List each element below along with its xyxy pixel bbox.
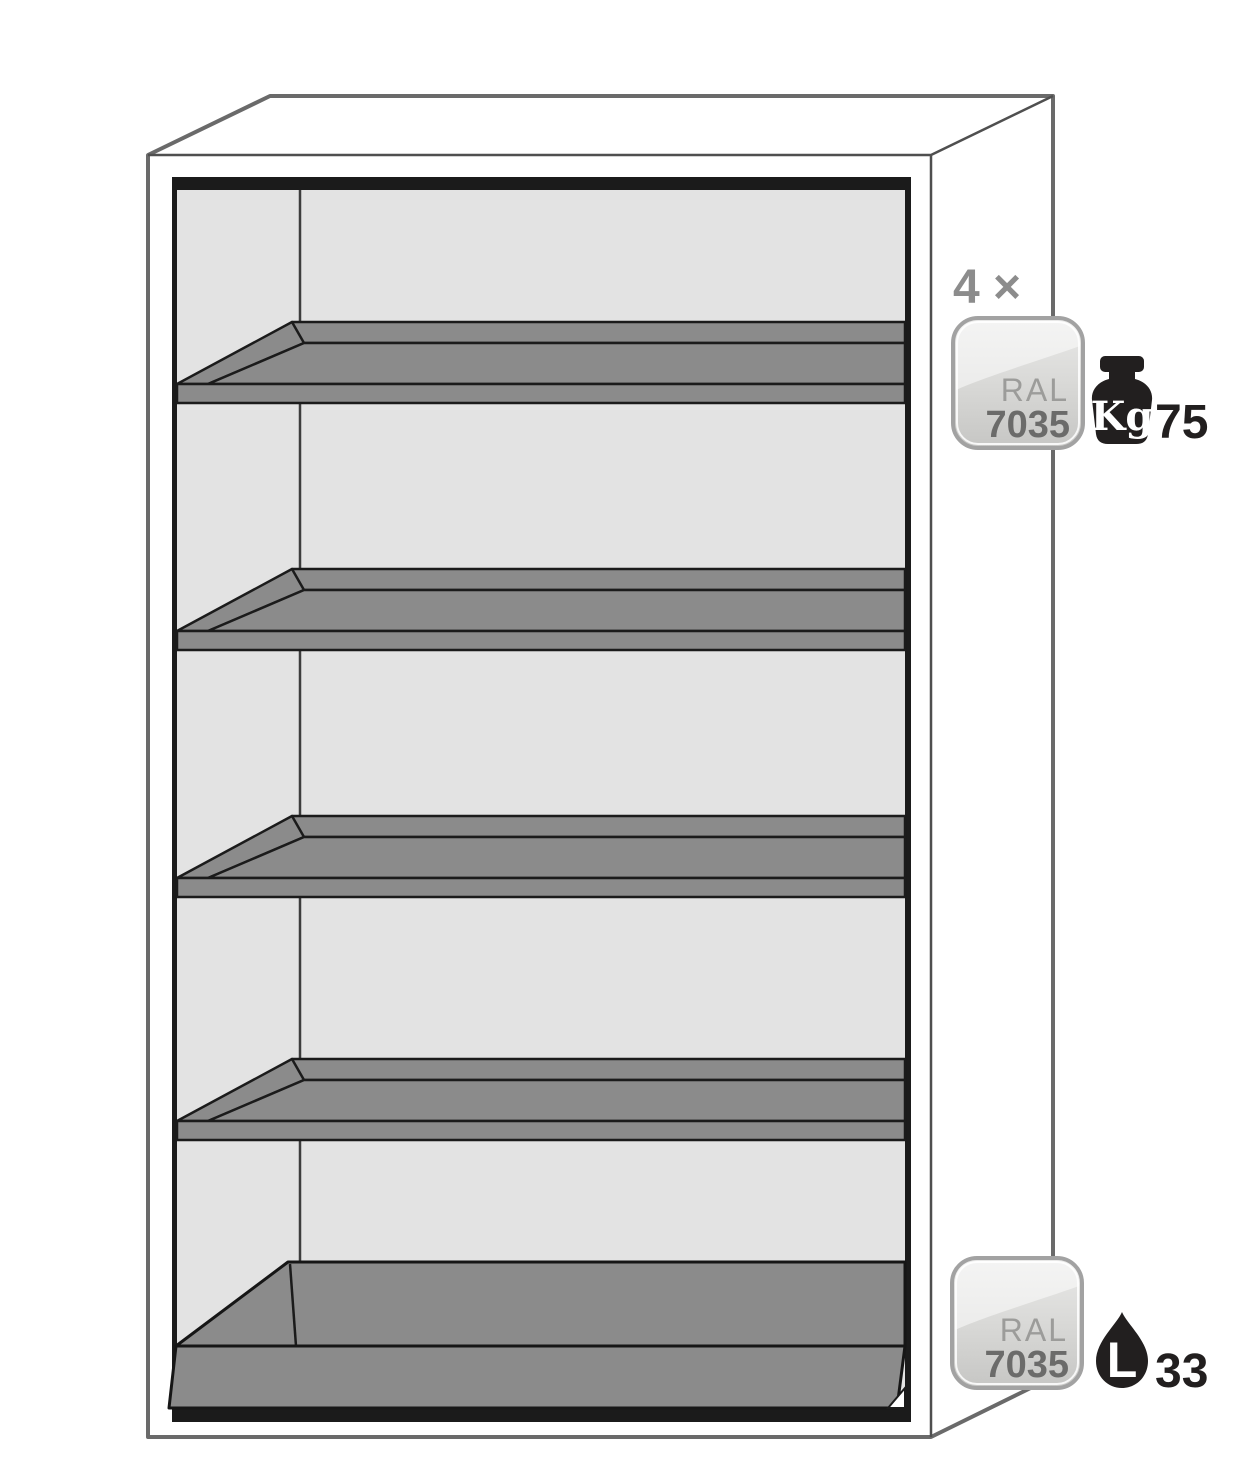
shelf-top-surface (208, 837, 905, 878)
shelf-count-label: 4 × (953, 261, 1021, 314)
shelf-back-rim (292, 816, 905, 837)
shelf-top-surface (208, 590, 905, 631)
shelf-back-rim (292, 1059, 905, 1080)
weight-icon-handle (1100, 356, 1144, 372)
shelf-4 (177, 1059, 905, 1140)
sump-color-badge: RAL 7035 (952, 1258, 1082, 1388)
ral-code-label: 7035 (985, 404, 1070, 446)
sump-capacity-value: 33 (1155, 1345, 1208, 1398)
shelf-back-rim (292, 569, 905, 590)
shelf-top-surface (208, 1080, 905, 1121)
weight-icon: Kg (1091, 356, 1154, 444)
sump-tray (169, 1262, 905, 1408)
shelf-front-edge (177, 631, 905, 650)
ral-standard-label: RAL (1000, 1312, 1068, 1348)
weight-unit-label: Kg (1091, 393, 1154, 440)
cabinet-diagram: 4 × RAL 7035 Kg 75 RAL 7035 L 33 (0, 0, 1243, 1468)
cabinet-top-face (148, 96, 1053, 155)
shelf-3 (177, 816, 905, 897)
drop-icon: L (1096, 1312, 1148, 1388)
shelf-2 (177, 569, 905, 650)
shelf-front-edge (177, 384, 905, 403)
ral-standard-label: RAL (1001, 372, 1069, 408)
shelf-front-edge (177, 1121, 905, 1140)
diagram-stage: 4 × RAL 7035 Kg 75 RAL 7035 L 33 (0, 0, 1243, 1468)
shelf-front-edge (177, 878, 905, 897)
shelf-top-surface (208, 343, 905, 384)
sump-interior (176, 1262, 905, 1346)
shelf-load-value: 75 (1155, 396, 1208, 449)
shelf-color-badge: RAL 7035 (953, 318, 1083, 448)
volume-unit-label: L (1107, 1332, 1138, 1388)
shelf-back-rim (292, 322, 905, 343)
ral-code-label: 7035 (984, 1344, 1069, 1386)
shelf-1 (177, 322, 905, 403)
sump-front-wall (169, 1346, 905, 1408)
